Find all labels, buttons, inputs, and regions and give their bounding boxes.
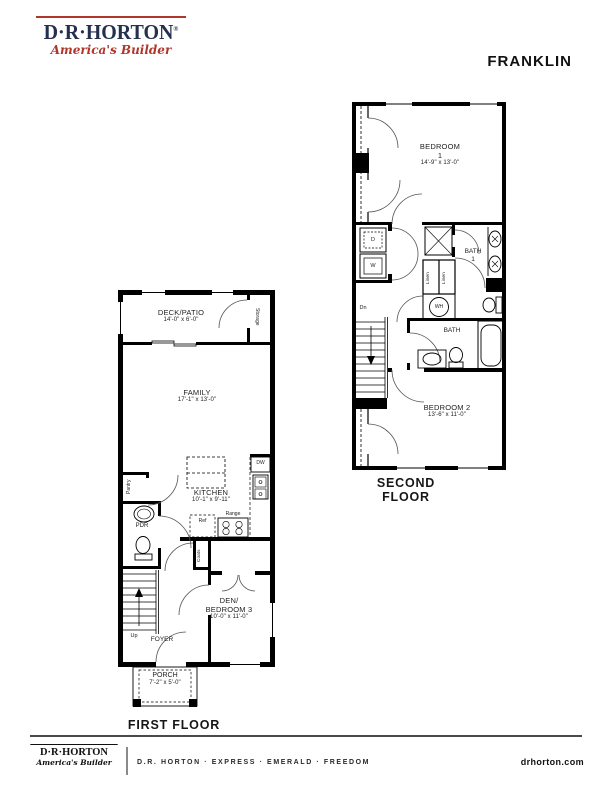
dryer-label: D: [366, 237, 380, 244]
room-family: FAMILY 17'-1" x 13'-0": [147, 388, 247, 404]
room-den: DEN/ BEDROOM 3 10'-0" x 11'-0": [183, 596, 275, 621]
kitchen-island: [187, 457, 225, 488]
foyer-label: FOYER: [137, 636, 187, 644]
linen1-label: Linen: [426, 264, 432, 292]
room-bedroom1: BEDROOM 1 14'-9" x 13'-0": [390, 142, 490, 167]
bath1-fixtures: [483, 227, 502, 313]
sliding-door: [152, 341, 196, 346]
bedroom1-dims: 14'-9" x 13'-0": [390, 160, 490, 167]
washer-label: W: [366, 263, 380, 270]
dishwasher-label: DW: [252, 460, 269, 466]
footer-logo: D·R·HORTON America's Builder: [28, 744, 120, 767]
room-kitchen: KITCHEN 10'-1" x 9'-11": [163, 488, 259, 504]
bedroom1-label: BEDROOM: [390, 142, 490, 151]
brand-logo: D·R·HORTON® America's Builder: [36, 16, 186, 57]
bedroom1-number: 1: [390, 151, 490, 160]
closet-walls: [356, 106, 369, 466]
stairs-down-label: Dn: [356, 305, 370, 312]
kitchen-label: KITCHEN: [163, 488, 259, 497]
footer-divider: [126, 747, 128, 775]
washer-dryer: [360, 228, 386, 278]
first-floor-plan: DECK/PATIO 14'-0" x 6'-0" Storage FAMILY…: [118, 288, 285, 738]
plan-title: FRANKLIN: [487, 53, 572, 70]
second-floor-caption: SECOND FLOOR: [352, 476, 460, 504]
water-heater-label: WH: [431, 304, 447, 310]
family-dims: 17'-1" x 13'-0": [147, 397, 247, 404]
room-bedroom2: BEDROOM 2 13'-6" x 11'-0": [397, 403, 497, 419]
stairs-down: [356, 317, 388, 398]
room-porch: PORCH 7'-2" x 5'-0": [133, 672, 197, 688]
deck-dims: 14'-0" x 6'-0": [131, 317, 231, 324]
den-label1: DEN/: [183, 596, 275, 605]
bath1-label: BATH: [454, 248, 492, 256]
range-label: Range: [217, 511, 249, 517]
footer-brand-name: D·R·HORTON: [30, 744, 117, 758]
stairs-up: [123, 570, 159, 634]
shower: [425, 227, 452, 255]
refrigerator-label: Ref: [191, 518, 214, 524]
footer-brand-list: D.R. HORTON · EXPRESS · EMERALD · FREEDO…: [137, 759, 370, 766]
footer-rule: [30, 735, 582, 737]
logo-rule: [36, 16, 186, 18]
bedroom2-dims: 13'-6" x 11'-0": [397, 412, 497, 419]
powder-room-label: PDR: [126, 523, 158, 530]
bedroom2-label: BEDROOM 2: [397, 403, 497, 412]
den-dims: 10'-0" x 11'-0": [183, 614, 275, 621]
bath1-number: 1: [454, 256, 492, 264]
powder-room-fixtures: [134, 506, 154, 560]
storage-label: Storage: [254, 300, 260, 334]
registered-mark: ®: [173, 25, 178, 33]
brand-tagline: America's Builder: [36, 43, 186, 57]
family-label: FAMILY: [147, 388, 247, 397]
porch-dims: 7'-2" x 5'-0": [133, 680, 197, 687]
first-floor-caption: FIRST FLOOR: [118, 718, 230, 732]
pantry-label: Pantry: [126, 474, 132, 500]
second-floor-plan: BEDROOM 1 14'-9" x 13'-0" D W BATH 1 Lin…: [352, 98, 518, 498]
porch-label: PORCH: [133, 672, 197, 680]
brand-name-text: D·R·HORTON: [44, 20, 174, 44]
coats-label: Coats: [197, 545, 203, 567]
bath2-label: BATH: [433, 327, 471, 335]
document-page: D·R·HORTON® America's Builder FRANKLIN: [0, 0, 612, 800]
footer-brand-tagline: America's Builder: [28, 758, 120, 767]
linen2-label: Linen: [442, 264, 448, 292]
deck-label: DECK/PATIO: [131, 308, 231, 317]
kitchen-dims: 10'-1" x 9'-11": [163, 497, 259, 504]
den-label2: BEDROOM 3: [183, 605, 275, 614]
room-deck: DECK/PATIO 14'-0" x 6'-0": [131, 308, 231, 324]
room-bath1: BATH 1: [454, 248, 492, 264]
brand-name: D·R·HORTON®: [40, 21, 183, 43]
footer-website-link[interactable]: drhorton.com: [521, 757, 584, 767]
